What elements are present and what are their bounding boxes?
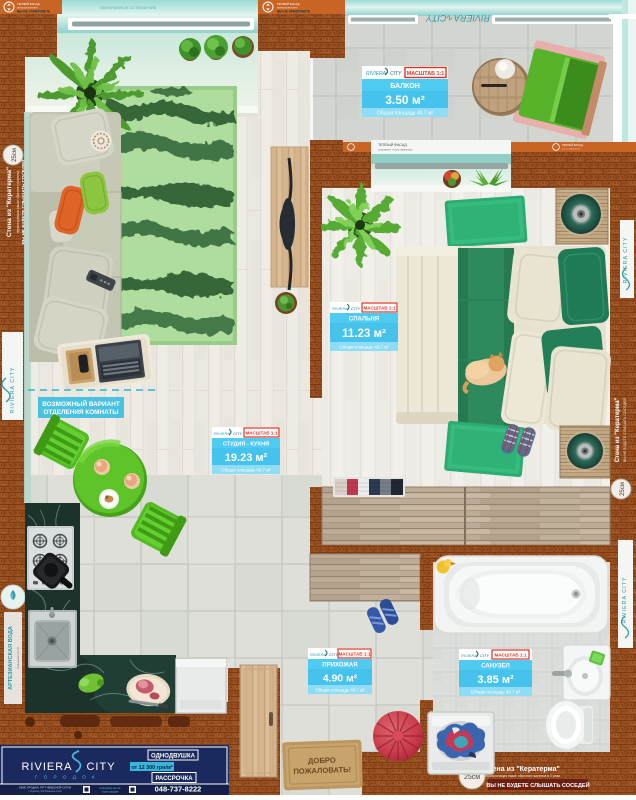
svg-text:ТЕПЛЫЙ ФАСАД: ТЕПЛЫЙ ФАСАД: [17, 2, 39, 6]
svg-text:АРТЕЗИАНСКАЯ ВОДА: АРТЕЗИАНСКАЯ ВОДА: [8, 626, 14, 690]
svg-text:МАСШТАБ 1:1: МАСШТАБ 1:1: [494, 653, 526, 658]
svg-text:от 12 300 грн/м²: от 12 300 грн/м²: [131, 765, 173, 771]
svg-text:Общая площадь 40.7 м²: Общая площадь 40.7 м²: [221, 468, 271, 473]
svg-text:RIVIERA: RIVIERA: [332, 306, 348, 311]
svg-text:RIVIERA: RIVIERA: [461, 653, 477, 658]
svg-text:048-737-8222: 048-737-8222: [155, 785, 202, 794]
svg-text:11.23 м²: 11.23 м²: [342, 328, 386, 340]
svg-text:МАСШТАБ 1:1: МАСШТАБ 1:1: [338, 652, 370, 657]
svg-text:rivieracity.od.ua: rivieracity.od.ua: [100, 786, 121, 790]
svg-text:ВОЗМОЖНЫЙ ВАРИАНТ: ВОЗМОЖНЫЙ ВАРИАНТ: [42, 399, 120, 408]
svg-text:Стена из "Кератерма": Стена из "Кератерма": [484, 766, 560, 773]
svg-text:Стена из "Кератерма": Стена из "Кератерма": [6, 167, 13, 237]
svg-text:25см: 25см: [464, 774, 480, 781]
svg-text:3.50 м²: 3.50 м²: [385, 93, 425, 107]
svg-text:ТЕПЛЫЙ ФАСАД: ТЕПЛЫЙ ФАСАД: [277, 2, 299, 6]
svg-text:МАСШТАБ 1:1: МАСШТАБ 1:1: [407, 71, 445, 77]
svg-text:RIVIERA: RIVIERA: [366, 71, 387, 77]
svg-text:ВЫ НЕ БУДЕТЕ СЛЫШАТЬ СОСЕДЕЙ: ВЫ НЕ БУДЕТЕ СЛЫШАТЬ СОСЕДЕЙ: [486, 781, 589, 789]
svg-text:CITY: CITY: [480, 653, 489, 658]
svg-text:МАСШТАБ 1:1: МАСШТАБ 1:1: [363, 306, 395, 311]
svg-text:RIVIERA: RIVIERA: [21, 761, 72, 773]
svg-text:Скважина 127м: Скважина 127м: [16, 647, 20, 669]
svg-text:ТЕПЛЫЙ ФАСАД: ТЕПЛЫЙ ФАСАД: [378, 143, 407, 147]
svg-text:CITY: CITY: [233, 431, 242, 436]
svg-text:ВЫ НЕ ЗАМЕРЗНЕТЕ: ВЫ НЕ ЗАМЕРЗНЕТЕ: [277, 9, 310, 13]
svg-text:RIVIERA CITY: RIVIERA CITY: [623, 236, 629, 283]
svg-text:Стена из "Кератерма": Стена из "Кератерма": [615, 397, 621, 462]
svg-text:ВЫ НЕ ЗАМЕРЗНЕТЕ: ВЫ НЕ ЗАМЕРЗНЕТЕ: [17, 9, 50, 13]
svg-text:CITY: CITY: [351, 306, 360, 311]
svg-text:RIVIERA∿CITY: RIVIERA∿CITY: [425, 13, 490, 23]
svg-text:Общая площадь 40.7 м²: Общая площадь 40.7 м²: [339, 345, 389, 350]
svg-text:4.90 м²: 4.90 м²: [323, 673, 358, 685]
svg-text:3.85 м²: 3.85 м²: [477, 674, 514, 686]
svg-text:ОФИС ПРОДАЖ: ПР-Т НЕБЕСНОЙ СОТ: ОФИС ПРОДАЖ: ПР-Т НЕБЕСНОЙ СОТНИ: [19, 786, 72, 790]
svg-text:Г О Р О Д О К: Г О Р О Д О К: [35, 775, 97, 780]
svg-text:вы не замерзнете: вы не замерзнете: [562, 149, 581, 151]
svg-text:Общая площадь 40.7 м²: Общая площадь 40.7 м²: [377, 111, 434, 117]
svg-text:г. Одесса, ЖК Ривьера Сити: г. Одесса, ЖК Ривьера Сити: [28, 789, 63, 793]
svg-text:25см: 25см: [620, 482, 626, 496]
svg-text:RIVIERA CITY: RIVIERA CITY: [622, 576, 628, 623]
svg-text:СПАЛЬНЯ: СПАЛЬНЯ: [349, 317, 379, 323]
svg-text:ТЕПЛЫЙ ФАСАД: ТЕПЛЫЙ ФАСАД: [562, 143, 583, 147]
svg-text:отдел продаж: отдел продаж: [102, 791, 119, 794]
svg-text:RIVIERA CITY: RIVIERA CITY: [10, 366, 16, 413]
svg-text:МАСШТАБ 1:1: МАСШТАБ 1:1: [245, 431, 277, 436]
svg-text:РАССРОЧКА: РАССРОЧКА: [155, 776, 193, 782]
svg-text:Общая площадь 40.7 м²: Общая площадь 40.7 м²: [471, 690, 521, 695]
svg-text:19.23 м²: 19.23 м²: [225, 452, 268, 464]
svg-text:25см: 25см: [12, 148, 18, 162]
svg-text:CITY: CITY: [390, 71, 402, 77]
svg-text:ОДНОДВУШКА: ОДНОДВУШКА: [151, 754, 196, 760]
svg-text:RIVIERA: RIVIERA: [214, 431, 230, 436]
svg-text:ПАНОРАМНОЕ ОСТЕКЛЕНИЕ: ПАНОРАМНОЕ ОСТЕКЛЕНИЕ: [100, 5, 157, 10]
svg-text:САНУЗЕЛ: САНУЗЕЛ: [481, 664, 510, 670]
svg-text:сохраняет тепло квартиры: сохраняет тепло квартиры: [378, 148, 413, 152]
svg-text:CITY: CITY: [86, 761, 115, 773]
svg-text:БАЛКОН: БАЛКОН: [390, 83, 420, 90]
svg-text:ВЫ НЕ БУДЕТЕ СЛЫШАТЬ СОСЕДЕЙ: ВЫ НЕ БУДЕТЕ СЛЫШАТЬ СОСЕДЕЙ: [623, 398, 627, 462]
svg-text:СТУДИЯ - КУХНЯ: СТУДИЯ - КУХНЯ: [223, 442, 269, 448]
svg-text:звукоизоляция выше обычного ки: звукоизоляция выше обычного кирпича в 2 …: [484, 774, 560, 778]
svg-text:ПРИХОЖАЯ: ПРИХОЖАЯ: [322, 663, 357, 669]
svg-text:Общая площадь 40.7 м²: Общая площадь 40.7 м²: [315, 688, 365, 693]
svg-text:CITY: CITY: [329, 652, 338, 657]
svg-text:ДОБРО: ДОБРО: [308, 756, 336, 766]
svg-text:звукоизоляция выше обычного ки: звукоизоляция выше обычного кирпича: [16, 171, 20, 233]
svg-text:RIVIERA: RIVIERA: [310, 652, 326, 657]
